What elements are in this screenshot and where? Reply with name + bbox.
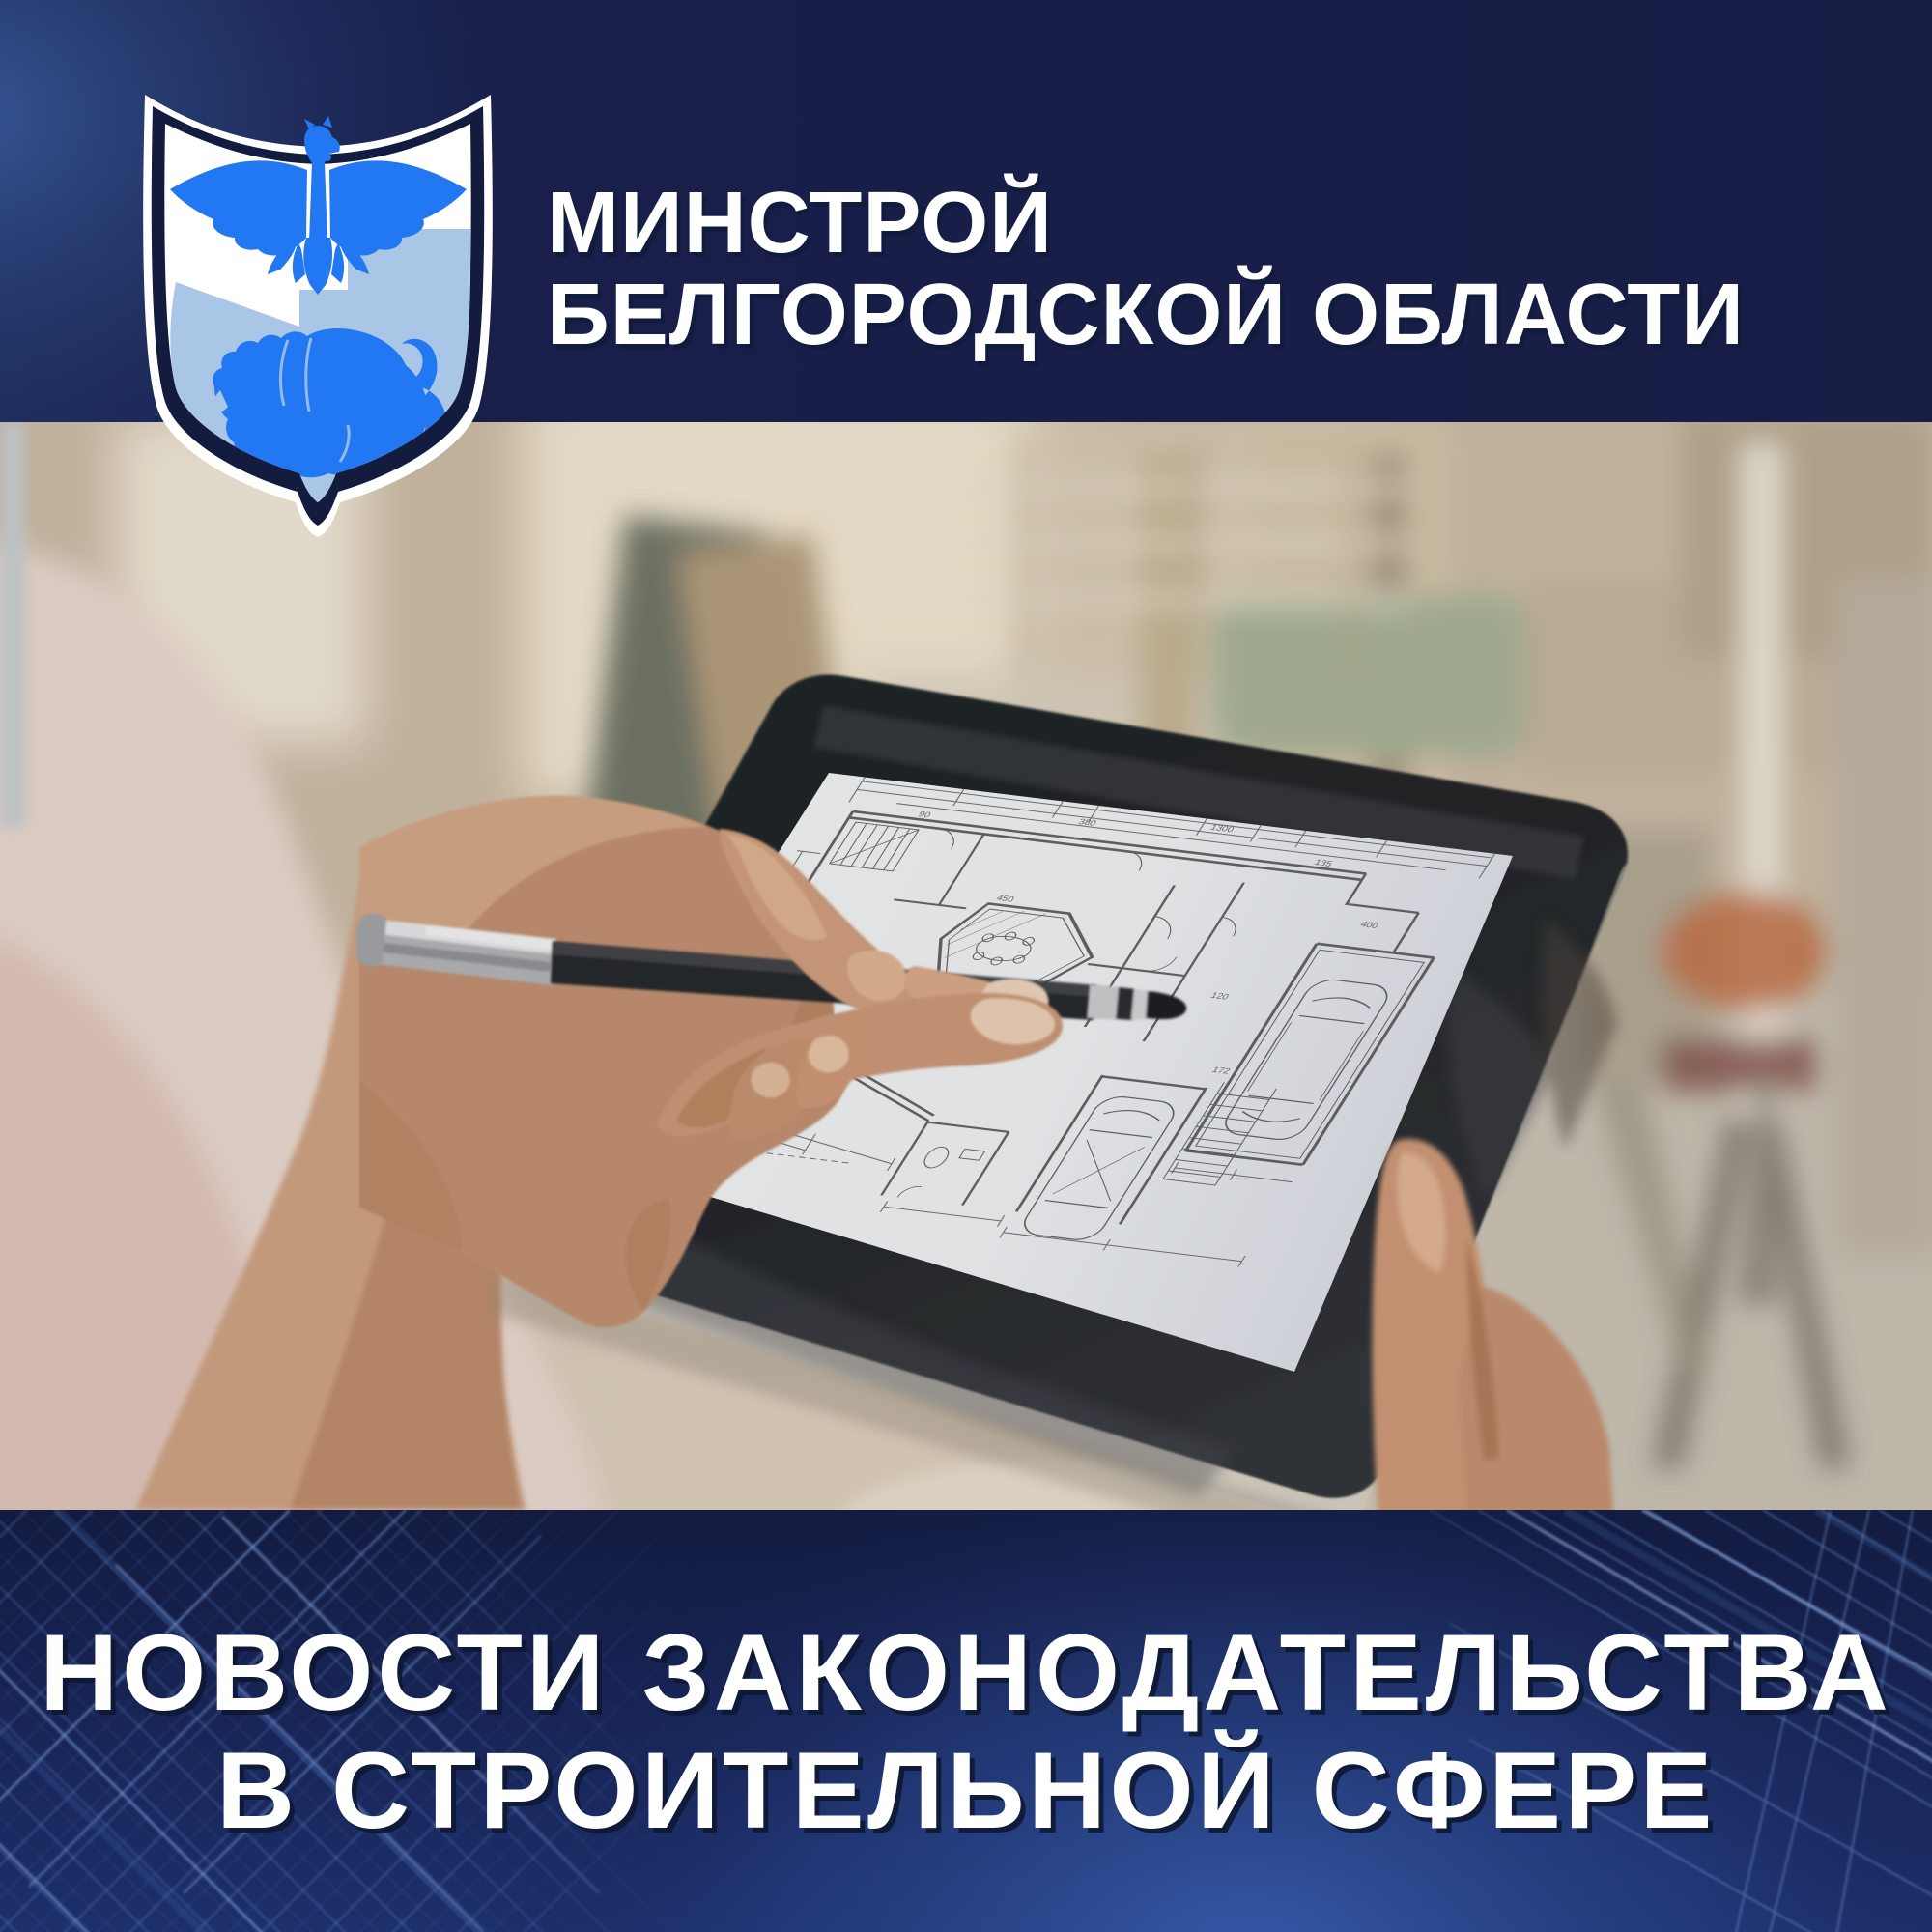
svg-text:МИНСТРОЙ: МИНСТРОЙ xyxy=(547,172,1053,271)
svg-text:НОВОСТИ ЗАКОНОДАТЕЛЬСТВА: НОВОСТИ ЗАКОНОДАТЕЛЬСТВА xyxy=(40,1612,1892,1733)
svg-text:В СТРОИТЕЛЬНОЙ СФЕРЕ: В СТРОИТЕЛЬНОЙ СФЕРЕ xyxy=(216,1730,1716,1851)
svg-text:БЕЛГОРОДСКОЙ ОБЛАСТИ: БЕЛГОРОДСКОЙ ОБЛАСТИ xyxy=(547,264,1745,363)
